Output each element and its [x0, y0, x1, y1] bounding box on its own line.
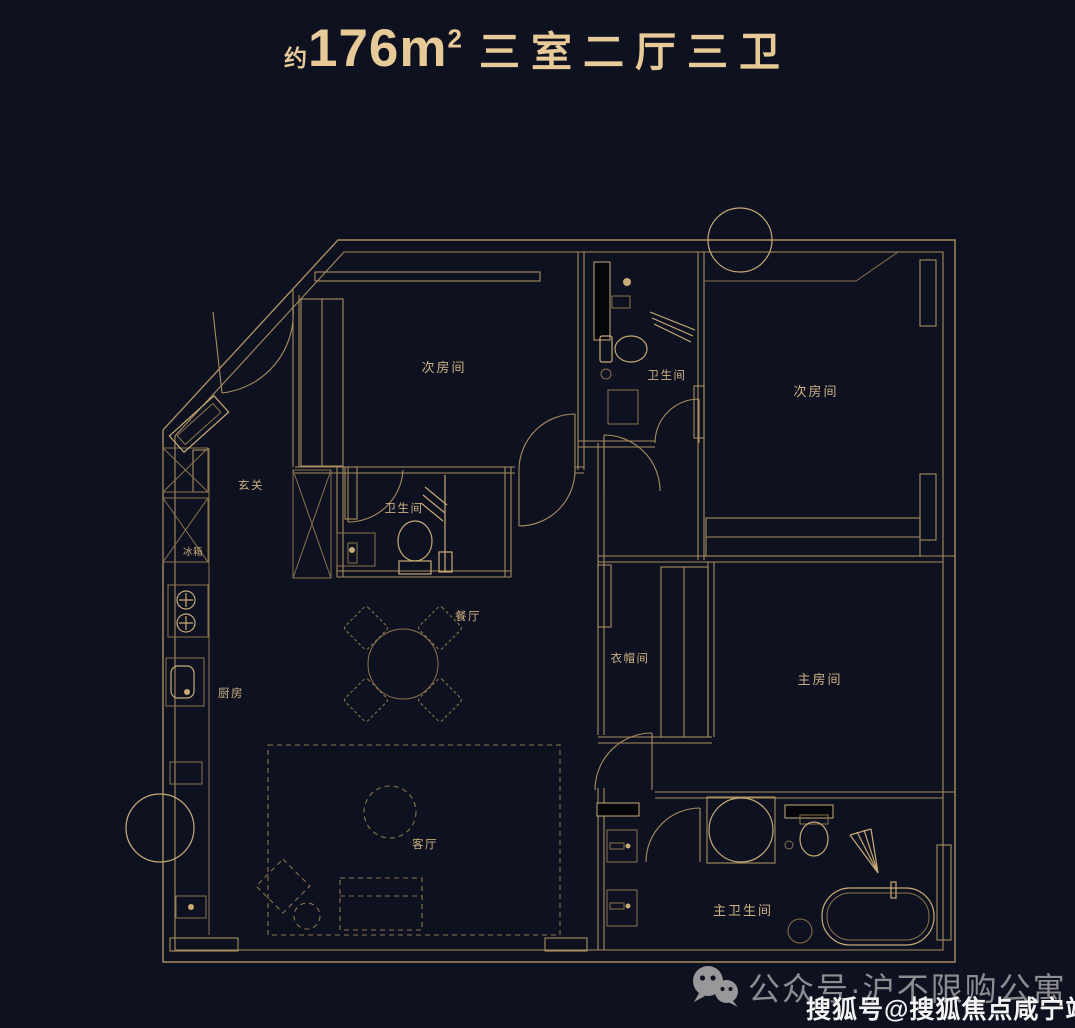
window-right-bottom [937, 845, 951, 940]
label-fridge: 冰箱 [183, 546, 203, 558]
dining-chair [343, 677, 388, 722]
dining-chair [417, 677, 462, 722]
door-master-bath [646, 808, 700, 862]
door-bedroom-top-right [604, 435, 660, 491]
floor-drain-master [788, 919, 812, 943]
shower-head-mid [421, 487, 447, 521]
dining-chair [343, 605, 388, 650]
tub-faucet [891, 882, 896, 898]
floorplan-drawing: 次房间 卫生间 次房间 玄关 卫生间 餐厅 衣帽间 主房间 厨房 客厅 主卫生间… [0, 0, 1075, 1028]
stove [168, 585, 208, 637]
kitchen-sink [166, 658, 204, 706]
bath-top-counter [612, 296, 630, 308]
columns [126, 208, 775, 863]
toilet-bowl-master [800, 822, 828, 856]
bath-mid-fixtures [337, 467, 452, 574]
bath-top-shower [650, 312, 695, 342]
window-right-middle [920, 474, 936, 540]
shower-head-master [850, 829, 878, 873]
toilet-bowl-top [615, 336, 647, 362]
living-table [364, 786, 416, 838]
room-label-bedroom-top-left: 次房间 [421, 360, 466, 375]
wechat-icon [688, 964, 744, 1010]
dining-table [368, 629, 438, 699]
towel-rack-bath-mid [345, 467, 357, 519]
master-bath-label-box [785, 805, 833, 818]
column-bottom-left [126, 794, 194, 862]
vanity-basin [607, 890, 637, 926]
room-label-master-bedroom: 主房间 [797, 672, 842, 687]
master-bath-fixtures [597, 803, 934, 945]
interior-walls [209, 252, 955, 950]
column-master-bath [709, 798, 773, 862]
room-label-master-bath: 主卫生间 [713, 903, 773, 918]
door-bath-top [655, 399, 699, 443]
bath-top-fixtures [594, 262, 699, 443]
column-box-master-bath [707, 797, 775, 863]
bath-mid-faucet [349, 547, 355, 553]
vanity-basin [607, 830, 637, 862]
dining-set [343, 605, 462, 722]
flue-hatch [193, 450, 208, 492]
window-right-top [920, 260, 936, 326]
room-label-bedroom-top-right: 次房间 [793, 384, 838, 399]
outer-walls [163, 240, 955, 962]
room-labels: 次房间 卫生间 次房间 玄关 卫生间 餐厅 衣帽间 主房间 厨房 客厅 主卫生间… [183, 360, 843, 918]
vanity-label-box [597, 803, 639, 816]
bath-top-faucet [623, 278, 631, 286]
window-bottom-center [545, 938, 587, 951]
window-bedroom-top-left [315, 272, 540, 281]
door-master-bedroom [595, 733, 652, 790]
sohu-account-text: 搜狐号@搜狐焦点咸宁站 [806, 990, 1075, 1026]
door-hall [519, 470, 575, 526]
bathtub [822, 888, 934, 945]
bath-top-label-box [594, 262, 610, 340]
window-bottom-left [170, 938, 238, 951]
room-label-bath-mid: 卫生间 [385, 501, 424, 515]
door-bedroom-top-left [519, 414, 575, 470]
room-label-kitchen: 厨房 [218, 687, 244, 700]
room-label-closet: 衣帽间 [611, 651, 650, 665]
doors [519, 414, 700, 862]
room-label-bath-top: 卫生间 [648, 368, 687, 382]
bath-mid-fixture [348, 543, 357, 563]
bath-top-cabinet [608, 390, 638, 424]
side-table [294, 903, 320, 929]
sofa [340, 878, 422, 930]
floorplan-page: 约176m2三室二厅三卫 [0, 0, 1075, 1028]
toilet-bowl-mid [398, 521, 432, 561]
room-label-entry: 玄关 [238, 478, 264, 492]
entry-meter-box [169, 396, 228, 452]
room-label-living: 客厅 [412, 837, 438, 851]
floor-drain-top [601, 369, 611, 379]
wardrobes-and-windows [170, 260, 951, 951]
toilet-tank-mid [399, 561, 431, 574]
room-label-dining: 餐厅 [455, 609, 481, 623]
armchair [256, 859, 310, 913]
living-furniture [256, 745, 560, 935]
